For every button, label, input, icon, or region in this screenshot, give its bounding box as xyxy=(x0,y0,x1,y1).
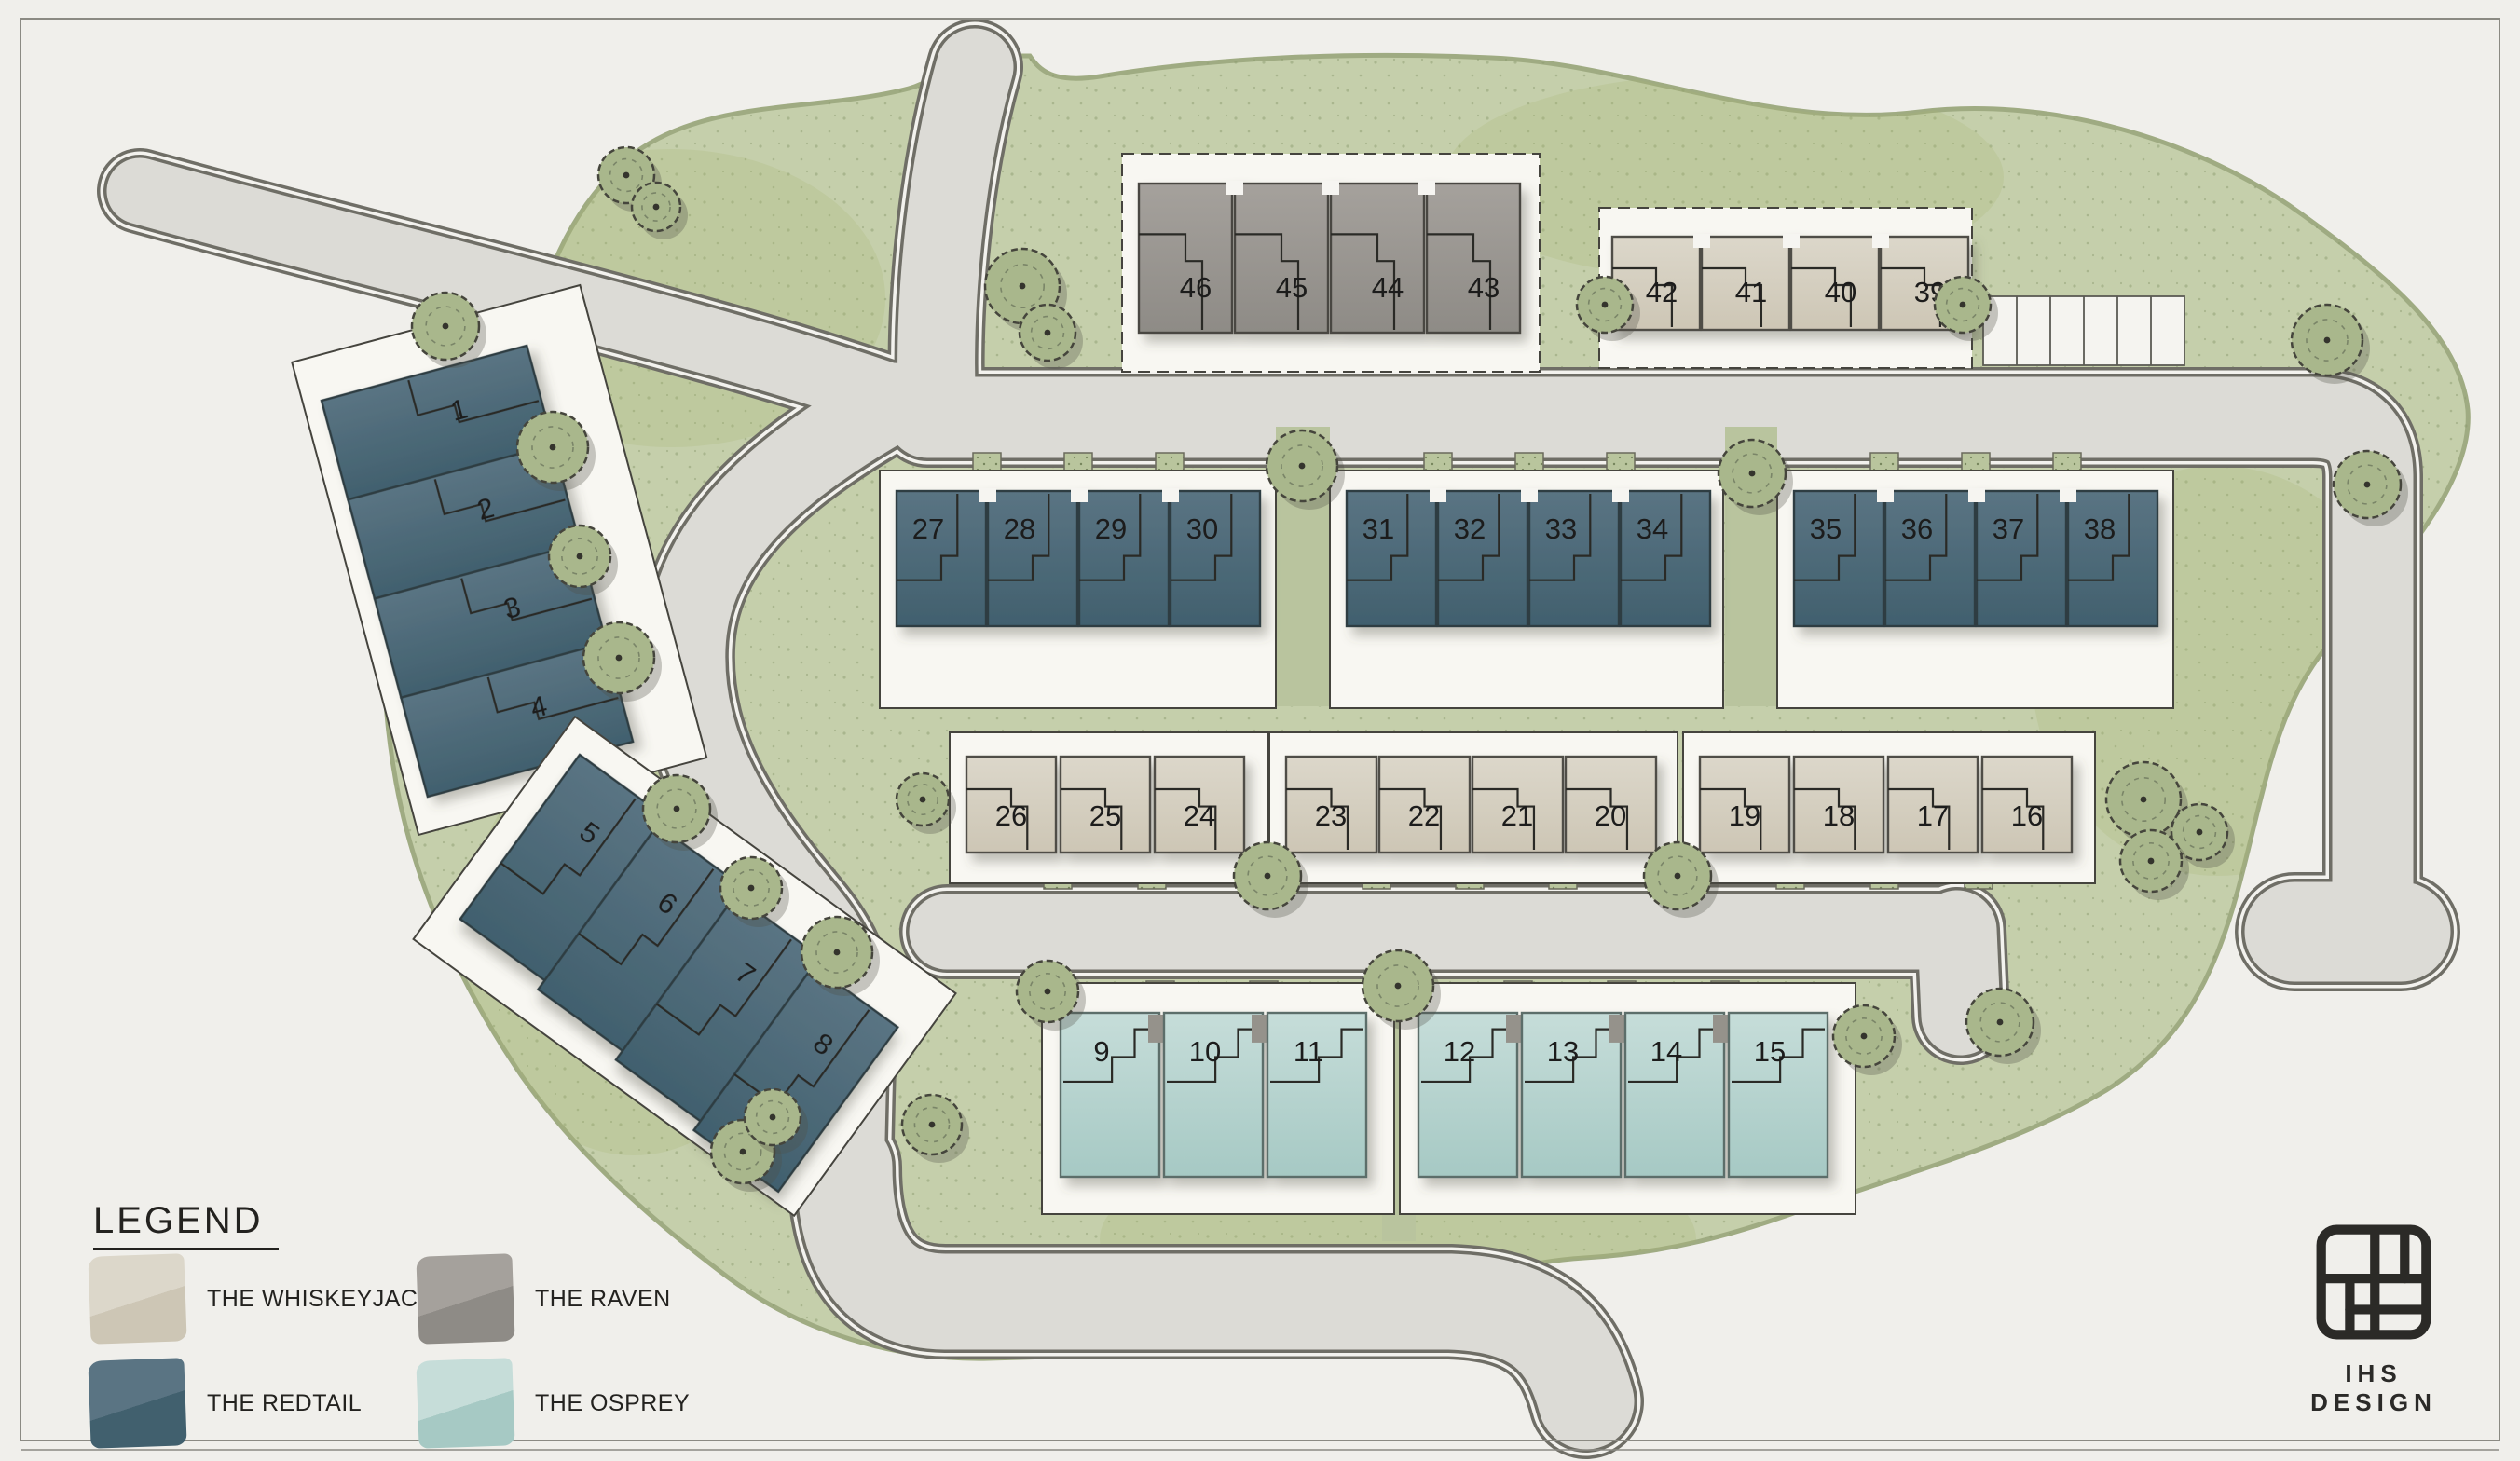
unit-number: 37 xyxy=(1993,512,2024,545)
unit-22[interactable]: 22 xyxy=(1379,757,1470,853)
road-midstub xyxy=(1957,930,1961,1016)
building-12-15: 12131415 xyxy=(1400,983,1856,1214)
unit-number: 20 xyxy=(1595,799,1626,832)
legend-swatch-whiskeyjack xyxy=(93,1260,183,1338)
unit-number: 26 xyxy=(995,799,1027,832)
unit-45[interactable]: 45 xyxy=(1226,181,1328,333)
legend-label: THE OSPREY xyxy=(535,1390,690,1417)
legend-label: THE WHISKEYJACK xyxy=(207,1286,434,1313)
unit-number: 31 xyxy=(1363,512,1394,545)
unit-number: 11 xyxy=(1294,1035,1323,1068)
legend-panel: LEGEND xyxy=(93,1200,279,1250)
unit-21[interactable]: 21 xyxy=(1472,757,1563,853)
legend-item-osprey: THE OSPREY xyxy=(421,1364,690,1442)
unit-number: 38 xyxy=(2084,512,2116,545)
building-39-42: 42414039 xyxy=(1599,208,1972,368)
unit-37[interactable]: 37 xyxy=(1968,488,2066,626)
unit-gap-notch xyxy=(1877,488,1894,502)
unit-16[interactable]: 16 xyxy=(1982,757,2072,853)
unit-number: 18 xyxy=(1823,799,1855,832)
ihs-logo-icon xyxy=(2314,1222,2433,1342)
building-27-30: 27282930 xyxy=(880,471,1276,708)
unit-25[interactable]: 25 xyxy=(1061,757,1150,853)
unit-36[interactable]: 36 xyxy=(1877,488,1975,626)
unit-number: 35 xyxy=(1810,512,1842,545)
unit-number: 30 xyxy=(1186,512,1218,545)
unit-11[interactable]: 11 xyxy=(1267,1013,1366,1177)
legend-label: THE REDTAIL xyxy=(207,1390,362,1417)
unit-gap-notch xyxy=(1071,488,1088,502)
unit-31[interactable]: 31 xyxy=(1347,491,1436,626)
unit-gap-notch xyxy=(1521,488,1538,502)
unit-number: 12 xyxy=(1444,1035,1475,1068)
unit-number: 9 xyxy=(1093,1035,1109,1068)
unit-gap-notch xyxy=(1226,181,1243,195)
building-16-19: 19181716 xyxy=(1683,732,2095,883)
unit-gap-notch xyxy=(1162,488,1179,502)
legend-item-raven: THE RAVEN xyxy=(421,1260,671,1338)
unit-10[interactable]: 10 xyxy=(1164,1013,1272,1177)
unit-number: 29 xyxy=(1095,512,1127,545)
unit-number: 40 xyxy=(1825,276,1856,308)
unit-38[interactable]: 38 xyxy=(2060,488,2157,626)
unit-46[interactable]: 46 xyxy=(1139,184,1232,333)
unit-gap-notch xyxy=(1783,234,1800,248)
parking-stalls xyxy=(1983,296,2184,365)
unit-14[interactable]: 14 xyxy=(1625,1013,1733,1177)
unit-32[interactable]: 32 xyxy=(1430,488,1527,626)
unit-number: 44 xyxy=(1372,271,1404,304)
unit-18[interactable]: 18 xyxy=(1794,757,1883,853)
unit-27[interactable]: 27 xyxy=(897,491,986,626)
road-stub xyxy=(937,67,975,416)
unit-20[interactable]: 20 xyxy=(1566,757,1656,853)
building-35-38: 35363738 xyxy=(1777,471,2173,708)
unit-17[interactable]: 17 xyxy=(1888,757,1978,853)
unit-number: 22 xyxy=(1408,799,1440,832)
ihs-design-logo: IHS DESIGN xyxy=(2285,1222,2462,1417)
unit-9[interactable]: 9 xyxy=(1061,1013,1169,1177)
unit-number: 14 xyxy=(1650,1035,1682,1068)
unit-44[interactable]: 44 xyxy=(1322,181,1424,333)
unit-number: 16 xyxy=(2011,799,2043,832)
site-plan-canvas: 1234567846454443424140392728293031323334… xyxy=(0,0,2520,1461)
building-9-11: 91011 xyxy=(1042,983,1394,1214)
site-plan-page: 1234567846454443424140392728293031323334… xyxy=(0,0,2520,1461)
unit-number: 24 xyxy=(1184,799,1215,832)
logo-text: IHS DESIGN xyxy=(2285,1359,2462,1417)
legend-swatch-redtail xyxy=(93,1364,183,1442)
unit-number: 32 xyxy=(1454,512,1486,545)
unit-number: 34 xyxy=(1637,512,1668,545)
unit-gap-notch xyxy=(1968,488,1985,502)
building-24-26: 262524 xyxy=(950,732,1268,883)
unit-number: 25 xyxy=(1089,799,1121,832)
unit-number: 10 xyxy=(1189,1035,1221,1068)
unit-15[interactable]: 15 xyxy=(1729,1013,1828,1177)
unit-33[interactable]: 33 xyxy=(1521,488,1619,626)
unit-28[interactable]: 28 xyxy=(979,488,1077,626)
unit-gap-notch xyxy=(1322,181,1339,195)
unit-gap-notch xyxy=(1430,488,1446,502)
unit-number: 21 xyxy=(1501,799,1533,832)
unit-number: 41 xyxy=(1735,276,1767,308)
unit-41[interactable]: 41 xyxy=(1693,234,1789,330)
unit-13[interactable]: 13 xyxy=(1522,1013,1630,1177)
unit-29[interactable]: 29 xyxy=(1071,488,1169,626)
unit-gap-notch xyxy=(979,488,996,502)
unit-number: 13 xyxy=(1547,1035,1579,1068)
unit-number: 46 xyxy=(1180,271,1212,304)
unit-number: 33 xyxy=(1545,512,1577,545)
legend-swatch-raven xyxy=(421,1260,511,1338)
unit-19[interactable]: 19 xyxy=(1700,757,1789,853)
unit-number: 27 xyxy=(912,512,944,545)
legend-item-redtail: THE REDTAIL xyxy=(93,1364,362,1442)
unit-24[interactable]: 24 xyxy=(1155,757,1244,853)
legend-label: THE RAVEN xyxy=(535,1286,671,1313)
unit-43[interactable]: 43 xyxy=(1418,181,1520,333)
unit-number: 43 xyxy=(1468,271,1500,304)
legend-title: LEGEND xyxy=(93,1200,279,1250)
unit-number: 42 xyxy=(1646,276,1678,308)
unit-number: 15 xyxy=(1754,1035,1786,1068)
unit-number: 23 xyxy=(1315,799,1347,832)
legend-swatch-osprey xyxy=(421,1364,511,1442)
building-43-46: 46454443 xyxy=(1122,154,1540,372)
unit-30[interactable]: 30 xyxy=(1162,488,1260,626)
building-31-34: 31323334 xyxy=(1330,471,1723,708)
unit-34[interactable]: 34 xyxy=(1612,488,1710,626)
legend-item-whiskeyjack: THE WHISKEYJACK xyxy=(93,1260,434,1338)
unit-number: 17 xyxy=(1917,799,1949,832)
unit-gap-notch xyxy=(1693,234,1710,248)
unit-12[interactable]: 12 xyxy=(1418,1013,1527,1177)
unit-gap-notch xyxy=(1418,181,1435,195)
unit-number: 45 xyxy=(1276,271,1308,304)
unit-number: 19 xyxy=(1729,799,1760,832)
unit-23[interactable]: 23 xyxy=(1286,757,1376,853)
unit-26[interactable]: 26 xyxy=(966,757,1056,853)
unit-gap-notch xyxy=(1872,234,1889,248)
unit-footprint xyxy=(1061,1013,1159,1177)
unit-number: 28 xyxy=(1004,512,1035,545)
unit-gap-notch xyxy=(2060,488,2076,502)
unit-number: 36 xyxy=(1901,512,1933,545)
unit-40[interactable]: 40 xyxy=(1783,234,1879,330)
unit-gap-notch xyxy=(1612,488,1629,502)
unit-35[interactable]: 35 xyxy=(1794,491,1883,626)
building-20-23: 23222120 xyxy=(1269,732,1678,883)
